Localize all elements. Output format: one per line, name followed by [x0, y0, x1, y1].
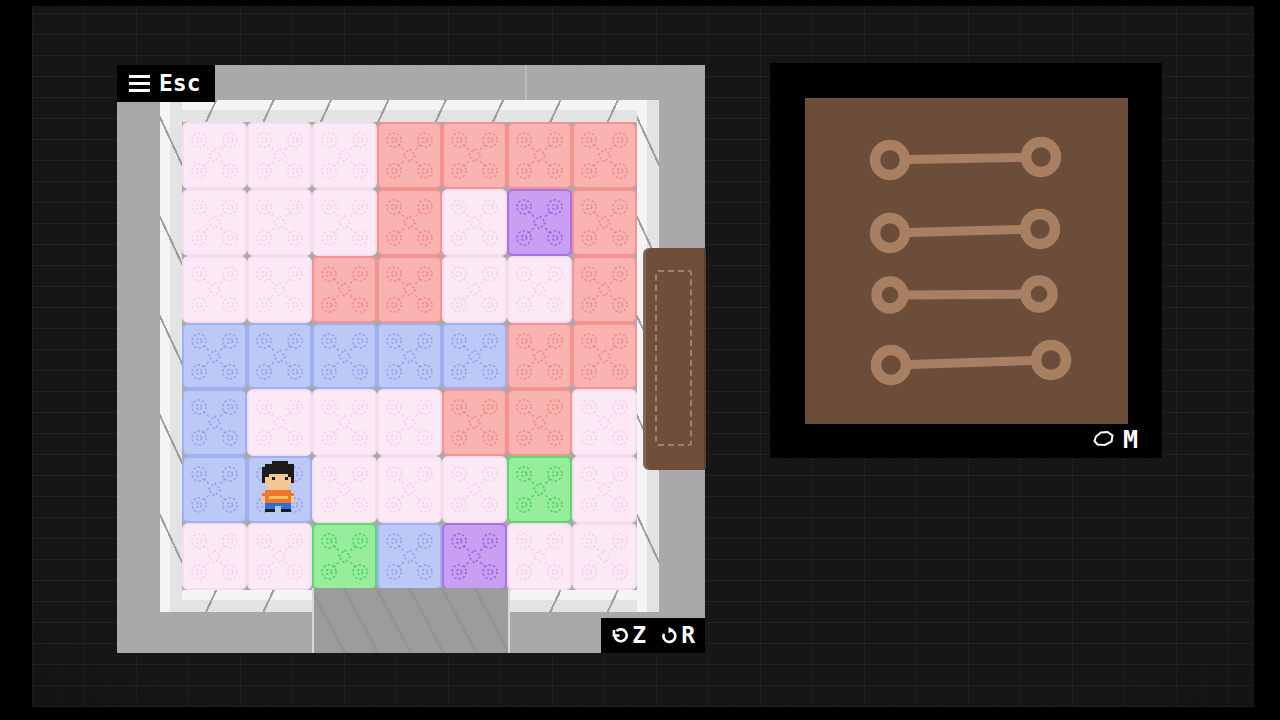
tile-blue	[182, 389, 247, 456]
tile-purple	[442, 523, 507, 590]
tile-pink	[247, 389, 312, 456]
tile-red	[507, 122, 572, 189]
tile-pink	[182, 189, 247, 256]
restart-arrow-icon	[660, 627, 678, 645]
tile-pink	[247, 523, 312, 590]
map-button[interactable]: M	[1092, 422, 1138, 456]
tile-red	[377, 122, 442, 189]
tile-pink	[572, 389, 637, 456]
bottom-doorway	[312, 588, 510, 653]
restart-key-label: R	[681, 624, 695, 647]
tile-blue	[377, 323, 442, 390]
tile-blue	[442, 323, 507, 390]
esc-menu-button[interactable]: Esc	[117, 65, 215, 102]
tile-red	[442, 389, 507, 456]
side-door[interactable]	[643, 248, 706, 470]
tile-pink	[247, 122, 312, 189]
tile-red	[572, 323, 637, 390]
tile-pink	[507, 523, 572, 590]
tile-red	[377, 189, 442, 256]
map-board	[805, 98, 1128, 424]
restart-button[interactable]: R	[660, 624, 695, 647]
map-links-drawing	[805, 98, 1128, 424]
tile-red	[377, 256, 442, 323]
floor-trim-top	[160, 100, 659, 122]
tile-blue	[182, 456, 247, 523]
tile-pink	[312, 122, 377, 189]
undo-restart-hints: Z R	[601, 618, 705, 653]
tile-green	[507, 456, 572, 523]
tile-pink	[182, 523, 247, 590]
tile-pink	[507, 256, 572, 323]
tile-red	[507, 323, 572, 390]
tile-purple	[507, 189, 572, 256]
tile-red	[572, 189, 637, 256]
tile-green	[312, 523, 377, 590]
tile-red	[312, 256, 377, 323]
tile-pink	[182, 122, 247, 189]
tile-pink	[442, 189, 507, 256]
tile-pink	[377, 389, 442, 456]
tile-pink	[247, 189, 312, 256]
tile-pink	[312, 389, 377, 456]
map-blob-icon	[1092, 430, 1116, 448]
wall-map-panel: M	[770, 63, 1162, 458]
puzzle-room: Esc Z R	[117, 65, 705, 653]
undo-button[interactable]: Z	[611, 624, 646, 647]
player-character	[259, 461, 301, 516]
tile-pink	[572, 456, 637, 523]
tile-red	[572, 122, 637, 189]
tile-red	[507, 389, 572, 456]
undo-key-label: Z	[632, 624, 646, 647]
tile-pink	[247, 256, 312, 323]
tile-pink	[442, 256, 507, 323]
door-panel	[655, 270, 692, 446]
undo-arrow-icon	[611, 627, 629, 645]
tile-red	[442, 122, 507, 189]
tile-blue	[247, 323, 312, 390]
tile-pink	[312, 456, 377, 523]
tile-floor	[182, 122, 637, 590]
esc-label: Esc	[159, 72, 201, 95]
tile-blue	[377, 523, 442, 590]
game-screen: Esc Z R	[0, 0, 1280, 720]
tile-red	[572, 256, 637, 323]
floor-trim-left	[160, 100, 182, 612]
tile-pink	[442, 456, 507, 523]
wall-seam	[525, 65, 527, 101]
tile-pink	[572, 523, 637, 590]
tile-blue	[182, 323, 247, 390]
tile-pink	[312, 189, 377, 256]
tile-pink	[182, 256, 247, 323]
tile-pink	[377, 456, 442, 523]
tile-blue	[312, 323, 377, 390]
map-key-label: M	[1123, 425, 1138, 454]
hamburger-icon	[129, 75, 150, 92]
